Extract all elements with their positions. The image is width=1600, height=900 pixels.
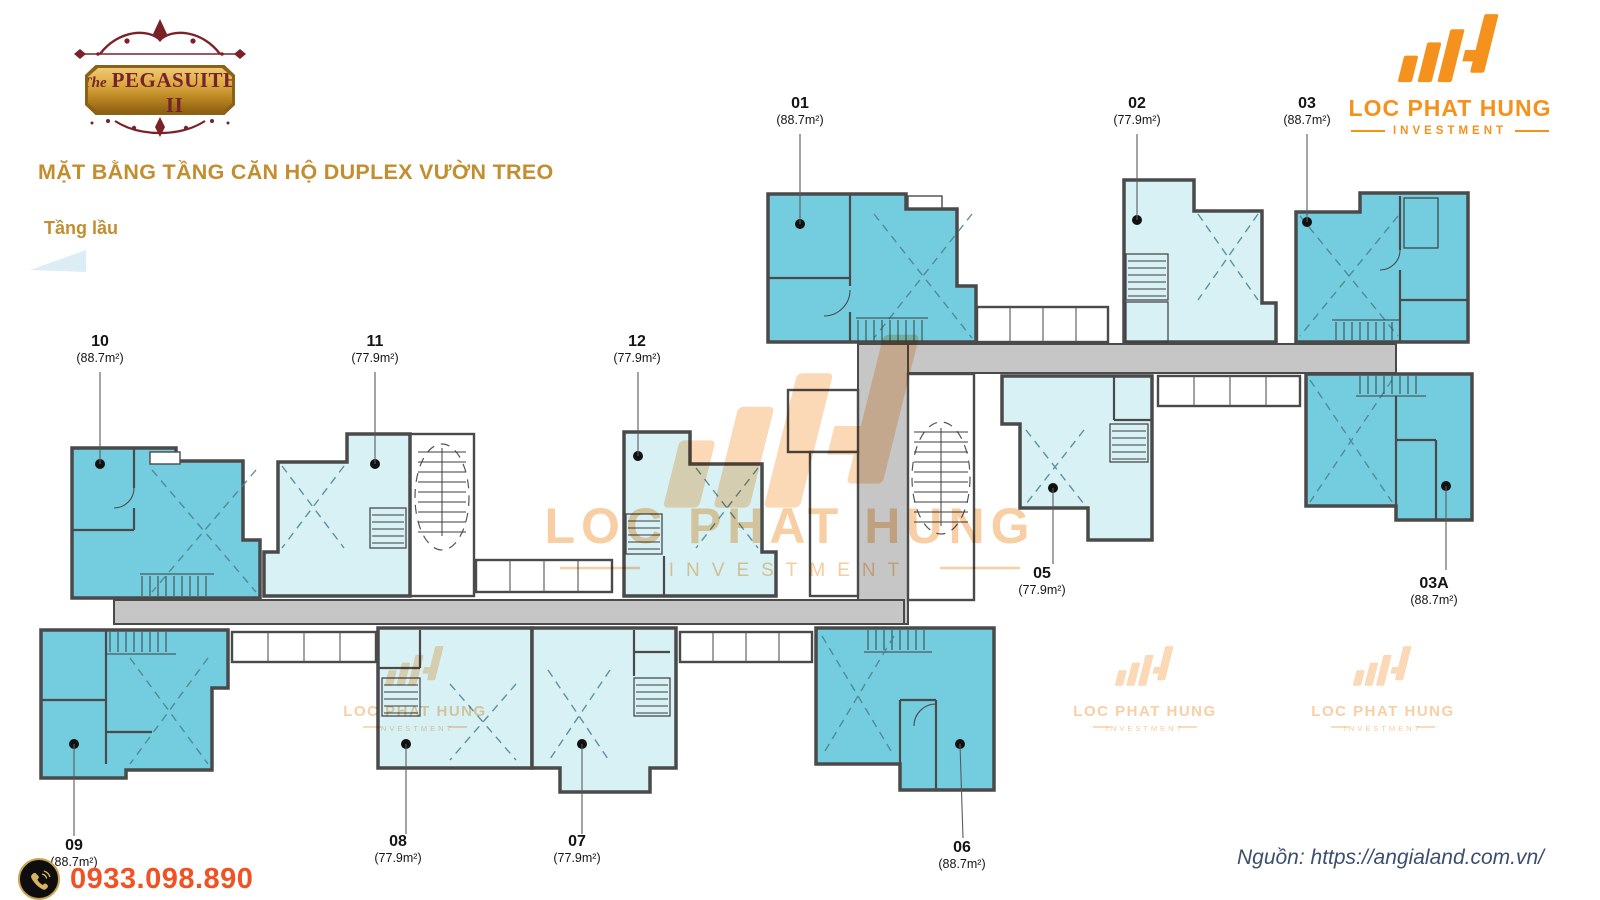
unit-number: 06 <box>938 840 985 856</box>
svg-text:LOC PHAT HUNG: LOC PHAT HUNG <box>343 703 486 720</box>
unit-area: (88.7m²) <box>1283 114 1330 127</box>
unit-label-03A: 03A (88.7m²) <box>1410 576 1457 607</box>
unit-label-07: 07 (77.9m²) <box>553 834 600 865</box>
unit-area: (77.9m²) <box>351 352 398 365</box>
unit-03-area <box>1296 193 1468 342</box>
unit-number: 05 <box>1018 566 1065 582</box>
unit-number: 07 <box>553 834 600 850</box>
unit-label-11: 11 (77.9m²) <box>351 334 398 365</box>
unit-area: (88.7m²) <box>1410 594 1457 607</box>
floorplan-page: LOC PHAT HUNG INVESTMENT LOC PHAT HUNG I… <box>0 0 1600 900</box>
unit-10-area <box>72 448 260 598</box>
unit-label-12: 12 (77.9m²) <box>613 334 660 365</box>
unit-number: 10 <box>76 334 123 350</box>
svg-text:LOC PHAT HUNG: LOC PHAT HUNG <box>1311 703 1454 720</box>
plaque: The PEGASUITE II <box>85 65 235 115</box>
unit-08-area <box>378 628 532 768</box>
unit-number: 09 <box>50 838 97 854</box>
unit-07-area <box>532 628 676 792</box>
unit-area: (88.7m²) <box>76 352 123 365</box>
company-name: LOC PHAT HUNG <box>1340 95 1560 122</box>
unit-area: (88.7m²) <box>776 114 823 127</box>
company-logo: LOC PHAT HUNG INVESTMENT <box>1340 12 1560 137</box>
unit-number: 11 <box>351 334 398 350</box>
unit-02-area <box>1124 180 1276 342</box>
divider-line <box>1515 130 1549 132</box>
unit-label-02: 02 (77.9m²) <box>1113 96 1160 127</box>
corridor-top <box>858 344 1396 373</box>
svg-text:INVESTMENT: INVESTMENT <box>1106 724 1184 733</box>
phone-number[interactable]: 0933.098.890 <box>70 863 253 896</box>
project-logo: The PEGASUITE II <box>70 14 250 150</box>
unit-11-area <box>264 434 410 596</box>
page-subtitle: Tầng lầu <box>44 218 118 239</box>
plaque-ornament-top <box>70 14 250 60</box>
plaque-ornament-bottom <box>70 115 250 145</box>
triangle-accent <box>30 250 86 272</box>
watermark-small-2: LOC PHAT HUNG INVESTMENT <box>1073 646 1216 733</box>
unit-area: (77.9m²) <box>613 352 660 365</box>
unit-01-area <box>768 194 976 342</box>
unit-number: 03A <box>1410 576 1457 592</box>
unit-09-area <box>41 630 228 778</box>
unit-label-01: 01 (88.7m²) <box>776 96 823 127</box>
page-title: MẶT BẰNG TẦNG CĂN HỘ DUPLEX VƯỜN TREO <box>38 160 554 185</box>
company-logo-icon <box>1398 12 1502 88</box>
unit-area: (77.9m²) <box>553 852 600 865</box>
company-division: INVESTMENT <box>1393 125 1507 137</box>
phone-contact[interactable]: 0933.098.890 <box>18 858 253 900</box>
unit-number: 01 <box>776 96 823 112</box>
watermark-small-3: LOC PHAT HUNG INVESTMENT <box>1311 646 1454 733</box>
unit-area: (77.9m²) <box>1113 114 1160 127</box>
corridor-bottom <box>114 600 904 624</box>
unit-label-03: 03 (88.7m²) <box>1283 96 1330 127</box>
unit-area: (77.9m²) <box>1018 584 1065 597</box>
unit-number: 02 <box>1113 96 1160 112</box>
unit-06-area <box>816 628 994 790</box>
watermark-text: LOC PHAT HUNG <box>545 498 1036 554</box>
divider-line <box>1351 130 1385 132</box>
source-link[interactable]: Nguồn: https://angialand.com.vn/ <box>1237 846 1544 870</box>
unit-number: 12 <box>613 334 660 350</box>
unit-area: (77.9m²) <box>374 852 421 865</box>
unit-label-10: 10 (88.7m²) <box>76 334 123 365</box>
unit-area: (88.7m²) <box>938 858 985 871</box>
plaque-name: PEGASUITE II <box>112 68 238 118</box>
svg-text:LOC PHAT HUNG: LOC PHAT HUNG <box>1073 703 1216 720</box>
svg-text:INVESTMENT: INVESTMENT <box>1344 724 1422 733</box>
unit-number: 03 <box>1283 96 1330 112</box>
watermark-logo-icon <box>663 335 920 508</box>
watermark-subtext: INVESTMENT <box>669 560 911 581</box>
unit-label-06: 06 (88.7m²) <box>938 840 985 871</box>
unit-03A-area <box>1306 374 1472 520</box>
phone-icon <box>18 858 60 900</box>
unit-label-08: 08 (77.9m²) <box>374 834 421 865</box>
svg-text:INVESTMENT: INVESTMENT <box>376 724 454 733</box>
unit-number: 08 <box>374 834 421 850</box>
plaque-prefix: The <box>82 75 106 92</box>
unit-label-05: 05 (77.9m²) <box>1018 566 1065 597</box>
